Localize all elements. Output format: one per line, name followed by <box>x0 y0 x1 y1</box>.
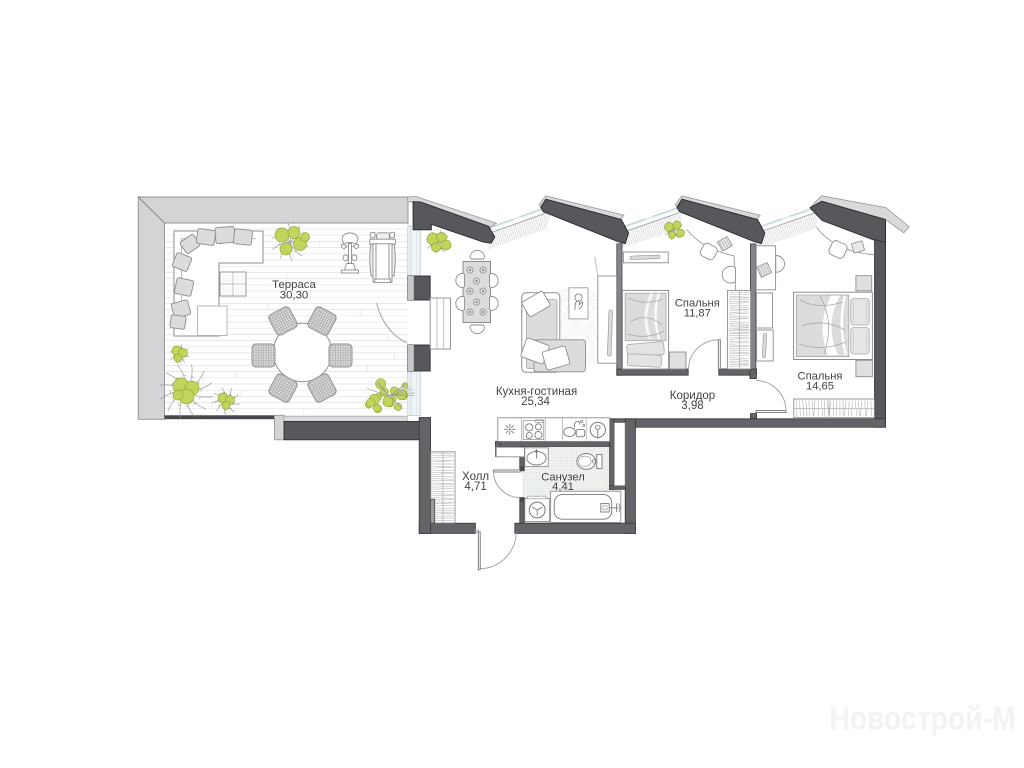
svg-text:14,65: 14,65 <box>806 380 834 392</box>
svg-text:3,98: 3,98 <box>681 400 703 412</box>
svg-text:4,71: 4,71 <box>464 481 486 493</box>
svg-text:Новострой-М: Новострой-М <box>829 699 1015 737</box>
svg-text:25,34: 25,34 <box>521 396 550 408</box>
svg-text:30,30: 30,30 <box>280 290 309 302</box>
svg-text:11,87: 11,87 <box>684 307 711 319</box>
svg-text:4,41: 4,41 <box>552 481 574 493</box>
